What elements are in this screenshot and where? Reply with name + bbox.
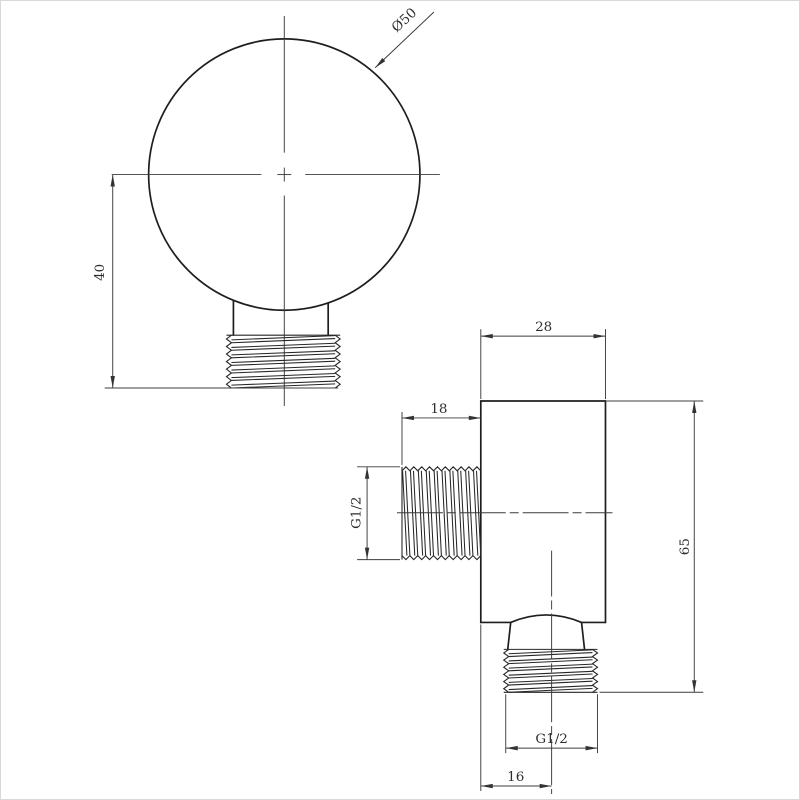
thread-hatching — [402, 556, 481, 560]
thread-hatching — [226, 335, 231, 388]
thread-hatching — [403, 471, 481, 556]
thread-hatching — [509, 650, 593, 692]
side-thread-size-label: G1/2 — [350, 497, 365, 529]
side-view: 28 18 G1/2 65 G1/2 — [350, 320, 704, 794]
thread-hatching — [504, 649, 509, 692]
side-left-thread — [402, 467, 481, 560]
thread-hatching — [231, 336, 335, 388]
side-width-dimension: 28 — [481, 320, 606, 399]
side-height-dimension: 65 — [600, 401, 704, 692]
bottom-thread-size-label: G1/2 — [535, 732, 567, 747]
front-height-dimension: 40 — [93, 175, 338, 388]
side-thread-length-dimension: 18 — [402, 402, 481, 465]
side-body-dome — [511, 615, 582, 622]
front-thread — [226, 335, 340, 388]
side-bottom-thread — [504, 649, 598, 692]
side-thread-size-dimension: G1/2 — [350, 467, 400, 560]
side-offset-label: 16 — [507, 770, 524, 785]
front-centerlines — [112, 16, 440, 406]
thread-hatching — [402, 467, 481, 471]
thread-hatching — [335, 335, 340, 388]
technical-drawing: Ø50 40 — [1, 1, 799, 799]
front-height-label: 40 — [93, 264, 108, 281]
side-height-label: 65 — [678, 538, 693, 555]
front-view: Ø50 40 — [93, 6, 440, 406]
side-thread-length-label: 18 — [430, 402, 447, 417]
diameter-label: Ø50 — [389, 6, 420, 36]
side-body — [481, 401, 606, 649]
side-width-label: 28 — [535, 320, 552, 335]
technical-drawing-canvas: Ø50 40 — [0, 0, 800, 800]
thread-hatching — [593, 649, 598, 692]
